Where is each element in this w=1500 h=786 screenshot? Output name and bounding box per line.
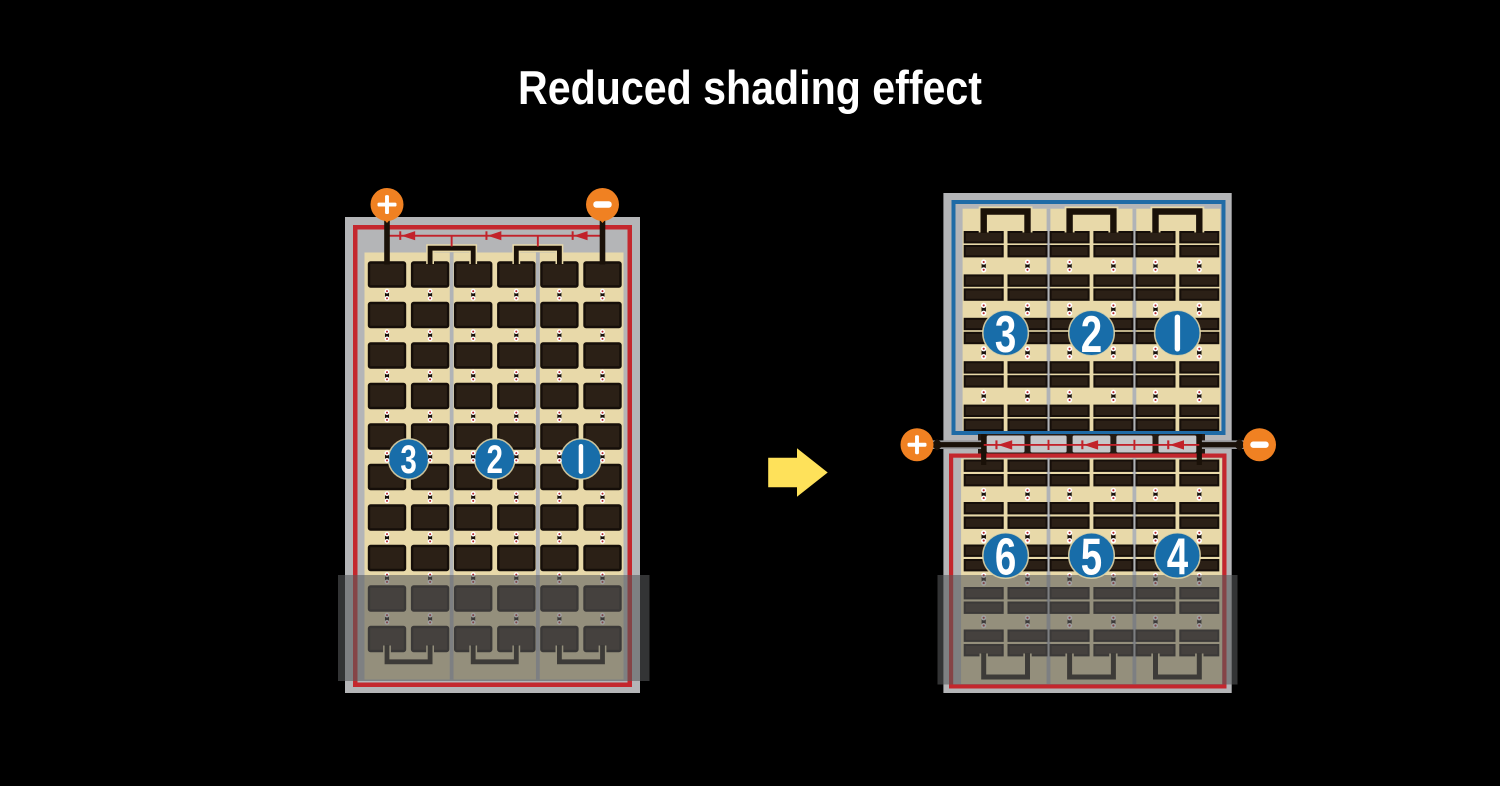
svg-text:3: 3 bbox=[995, 305, 1016, 363]
svg-text:4: 4 bbox=[1167, 528, 1189, 586]
svg-text:6: 6 bbox=[995, 528, 1016, 586]
svg-text:2: 2 bbox=[487, 438, 503, 482]
svg-text:2: 2 bbox=[1081, 305, 1102, 363]
svg-text:3: 3 bbox=[400, 438, 416, 482]
svg-text:5: 5 bbox=[1081, 528, 1102, 586]
svg-text:Reduced shading effect: Reduced shading effect bbox=[518, 61, 982, 114]
